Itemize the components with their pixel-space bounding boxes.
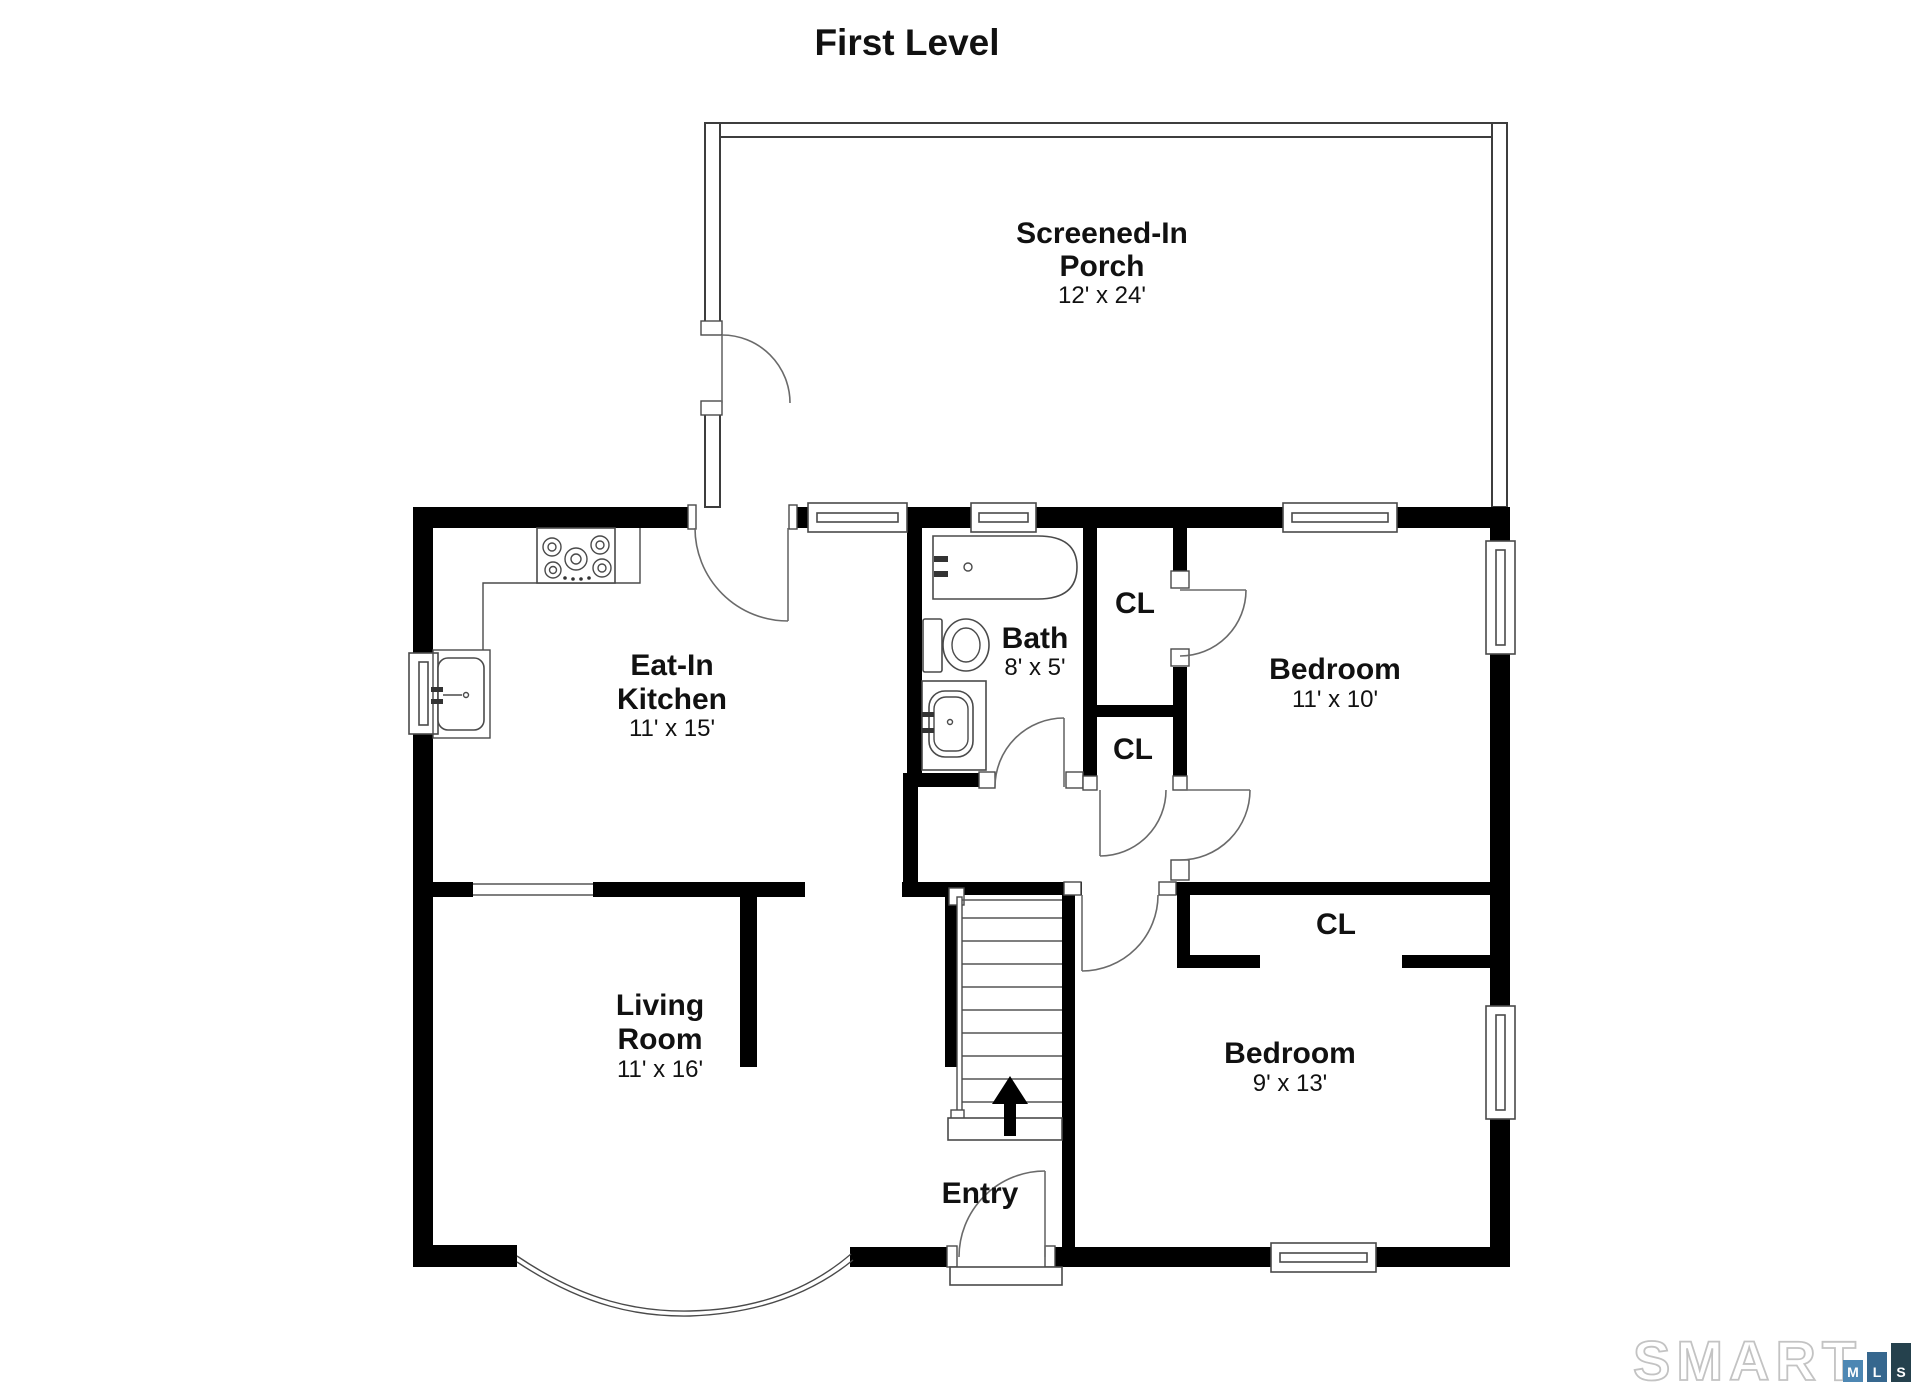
bedroom2-name: Bedroom (1224, 1037, 1356, 1070)
stair-railing (957, 897, 962, 1113)
bath-dims: 8' x 5' (1004, 654, 1065, 681)
closet2-label: CL (1113, 733, 1153, 766)
bath-sink-icon (922, 681, 986, 770)
staircase (948, 888, 1062, 1140)
kitchen-name-line2: Kitchen (617, 683, 727, 716)
floor-plan-page: First Level Screened-In Porch 12' x 24' … (0, 0, 1920, 1396)
entry-label: Entry (942, 1177, 1019, 1210)
window-bedroom2-east (1486, 1006, 1515, 1119)
closet3-label: CL (1316, 908, 1356, 941)
bath-label: Bath 8' x 5' (1002, 622, 1069, 681)
kitchen-dims: 11' x 15' (629, 715, 715, 742)
closet1-label: CL (1115, 587, 1155, 620)
bedroom1-label: Bedroom 11' x 10' (1269, 653, 1401, 713)
window-kitchen-north (808, 503, 907, 532)
porch-walls (705, 123, 1507, 507)
floor-plan-drawing: First Level Screened-In Porch 12' x 24' … (0, 0, 1920, 1396)
curved-bay-wall (517, 1254, 853, 1316)
bath-name: Bath (1002, 622, 1069, 655)
toilet-icon (923, 619, 989, 672)
bedroom1-dims: 11' x 10' (1292, 686, 1378, 713)
closet2-door (1083, 776, 1187, 856)
page-title: First Level (814, 22, 999, 63)
kitchen-label: Eat-In Kitchen 11' x 15' (617, 649, 727, 742)
bath-door (979, 718, 1083, 788)
living-label: Living Room 11' x 16' (616, 989, 704, 1083)
porch-name-line2: Porch (1059, 250, 1144, 283)
bedroom1-door (1171, 790, 1250, 880)
logo-word: SMART (1633, 1329, 1862, 1392)
porch-dims: 12' x 24' (1058, 282, 1146, 309)
window-bath-north (971, 503, 1036, 532)
kitchen-sink-icon (431, 658, 484, 730)
living-name-line2: Room (618, 1023, 703, 1056)
porch-name-line1: Screened-In (1016, 217, 1188, 250)
logo-letter-l: L (1873, 1364, 1882, 1380)
living-dims: 11' x 16' (617, 1056, 703, 1083)
bedroom2-door (1064, 882, 1176, 971)
closet1-door (1171, 571, 1246, 666)
window-bedroom1-east (1486, 541, 1515, 654)
window-bedroom1-north (1283, 503, 1397, 532)
stove-icon (537, 528, 615, 583)
bathtub-icon (933, 536, 1077, 599)
bedroom2-label: Bedroom 9' x 13' (1224, 1037, 1356, 1097)
bedroom2-dims: 9' x 13' (1253, 1070, 1328, 1097)
cased-opening (473, 884, 593, 895)
kitchen-porch-door (688, 505, 797, 621)
front-step (950, 1267, 1062, 1285)
porch-label: Screened-In Porch 12' x 24' (1016, 217, 1188, 309)
kitchen-name-line1: Eat-In (630, 649, 713, 682)
window-bedroom2-south (1271, 1243, 1376, 1272)
porch-door (701, 321, 790, 415)
logo-letter-m: M (1847, 1364, 1859, 1380)
logo-letter-s: S (1896, 1364, 1905, 1380)
living-name-line1: Living (616, 989, 704, 1022)
bedroom1-name: Bedroom (1269, 653, 1401, 686)
smartmls-logo: SMART M L S (1633, 1329, 1911, 1392)
